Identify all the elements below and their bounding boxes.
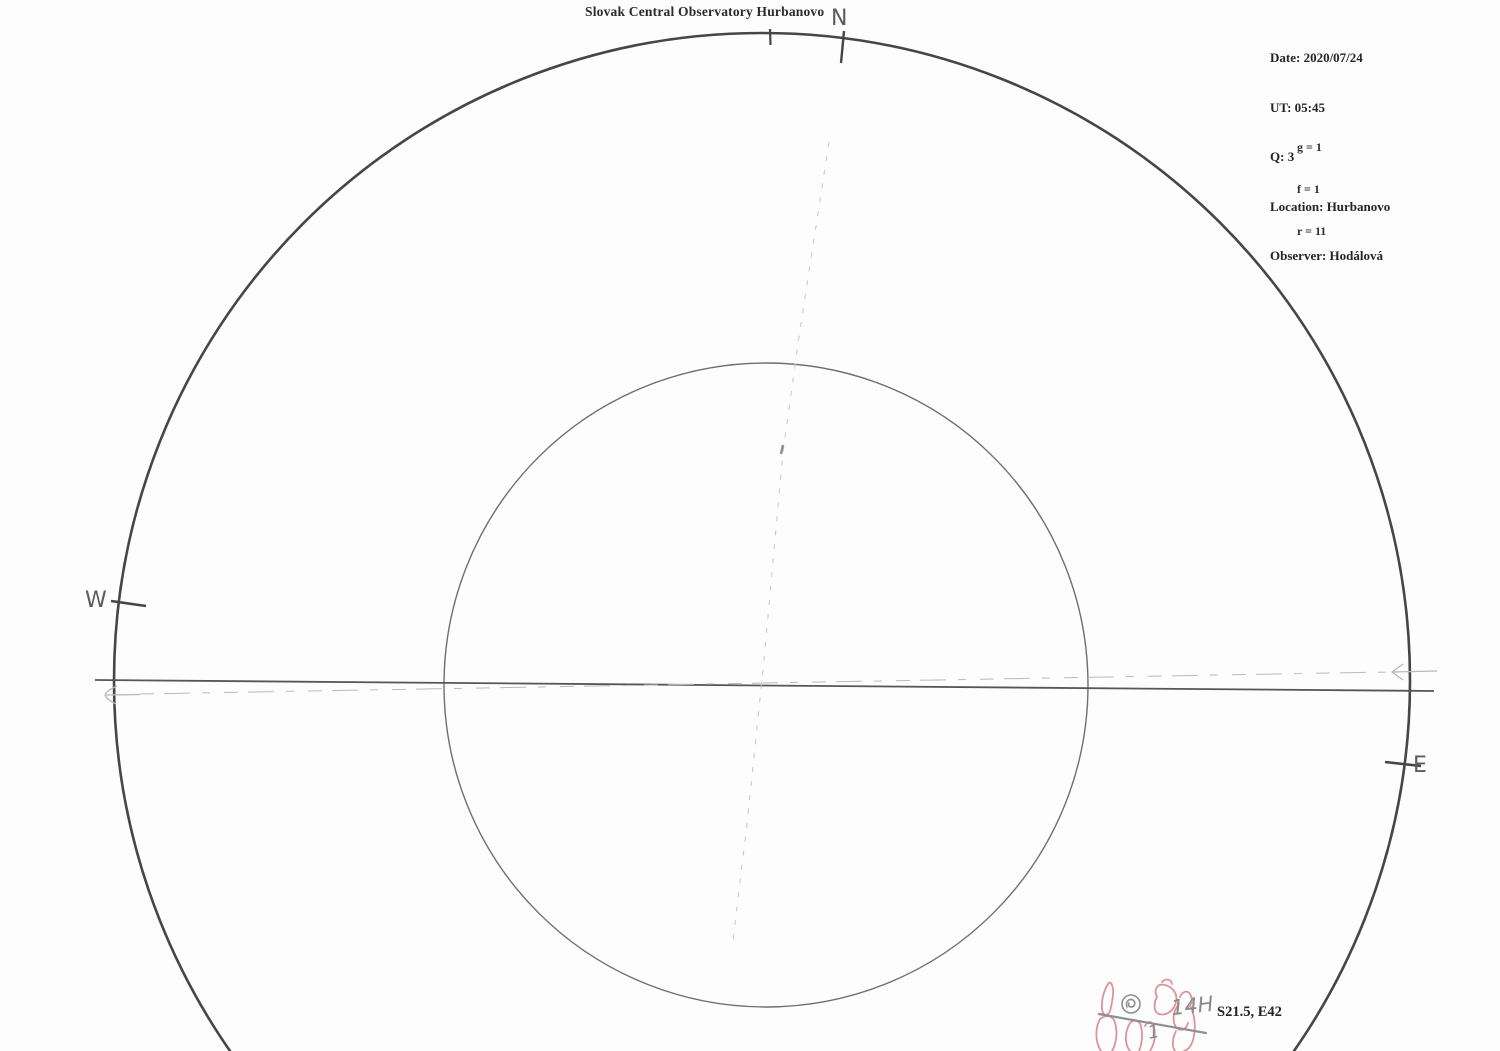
position-coordinates: S21.5, E42 bbox=[1217, 1004, 1282, 1021]
guide-dashed-line bbox=[140, 672, 1390, 694]
north-tick bbox=[841, 31, 844, 63]
top-tick bbox=[770, 29, 771, 45]
spots-count: f = 1 bbox=[1297, 182, 1326, 196]
north-label: N bbox=[831, 6, 847, 31]
location-line: Location: Hurbanovo bbox=[1270, 199, 1390, 216]
sunspot-symbol-icon bbox=[1122, 995, 1140, 1013]
ut-line: UT: 05:45 bbox=[1270, 100, 1390, 117]
observation-sheet: Slovak Central Observatory Hurbanovo Dat… bbox=[0, 0, 1500, 1051]
page-title: Slovak Central Observatory Hurbanovo bbox=[585, 4, 824, 20]
quality-line: Q: 3 bbox=[1270, 149, 1390, 166]
date-line: Date: 2020/07/24 bbox=[1270, 50, 1390, 67]
header-info-block: Date: 2020/07/24 UT: 05:45 Q: 3 Location… bbox=[1270, 17, 1390, 298]
west-tick bbox=[111, 601, 146, 606]
orientation-ticks bbox=[111, 29, 1421, 766]
groups-count: g = 1 bbox=[1297, 140, 1326, 154]
left-arrow-icon bbox=[105, 686, 140, 704]
east-label: E bbox=[1413, 753, 1427, 778]
meridian-mark bbox=[781, 445, 783, 454]
handwritten-group-label: 14H bbox=[1170, 992, 1215, 1020]
equator-line bbox=[95, 680, 1434, 691]
solar-disk-outline bbox=[114, 33, 1410, 1051]
relative-number: r = 11 bbox=[1297, 224, 1326, 238]
faint-guide-line bbox=[105, 664, 1437, 704]
central-meridian-line bbox=[733, 142, 829, 940]
observer-line: Observer: Hodálová bbox=[1270, 248, 1390, 265]
west-label: W bbox=[85, 588, 107, 613]
left-arrow-icon bbox=[1392, 664, 1437, 680]
sunspot-counts-block: g = 1 f = 1 r = 11 bbox=[1297, 112, 1326, 266]
